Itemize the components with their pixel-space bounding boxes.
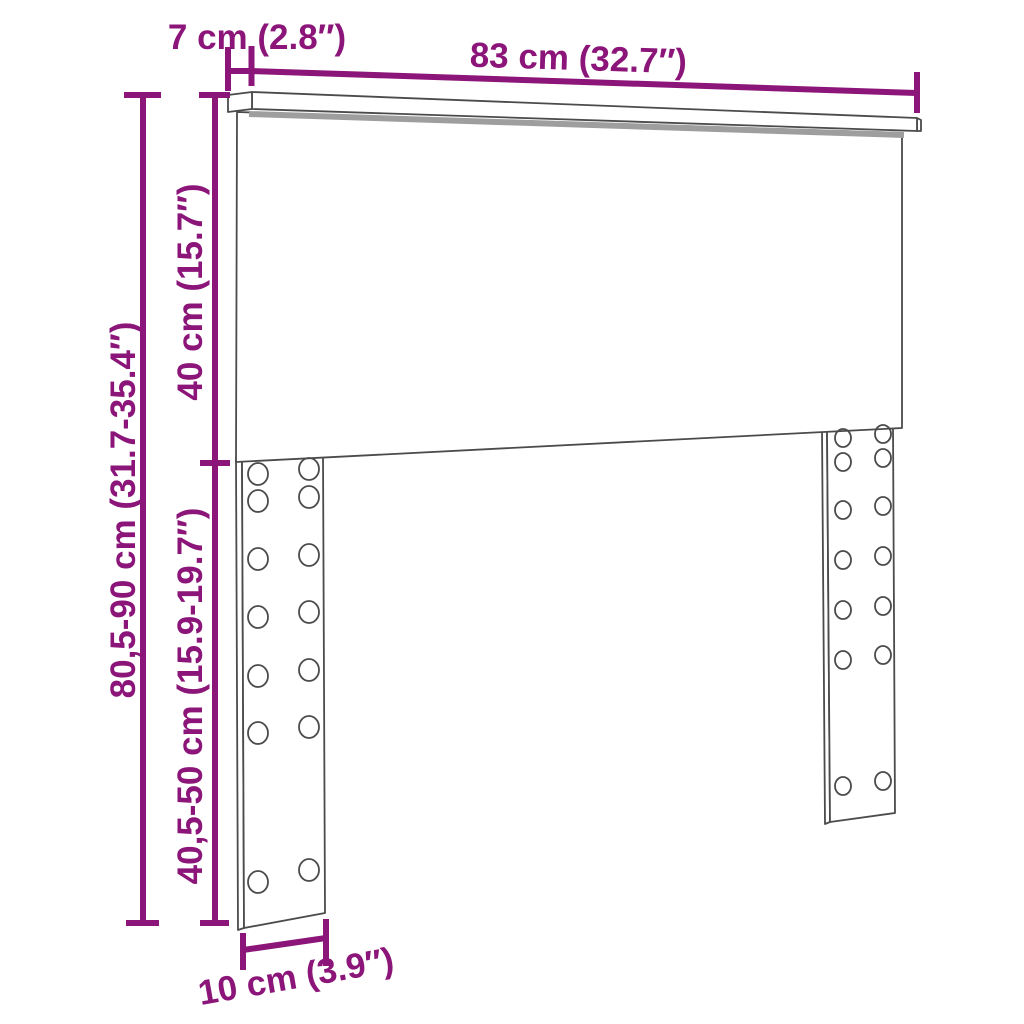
dim-total-height-label: 80,5-90 cm (31.7-35.4″) [104, 322, 143, 699]
dim-leg-width-label: 10 cm (3.9″) [195, 940, 396, 1013]
dim-leg-height: 40,5-50 cm (15.9-19.7″) [171, 463, 229, 923]
dim-leg-width-line [243, 938, 326, 950]
right-leg-front-face [827, 425, 895, 822]
dim-total-height: 80,5-90 cm (31.7-35.4″) [104, 95, 161, 923]
dim-upper-height-label: 40 cm (15.7″) [171, 183, 210, 400]
dim-leg-width: 10 cm (3.9″) [195, 919, 396, 1013]
dim-shelf-depth: 7 cm (2.8″) [168, 18, 346, 91]
right-leg [822, 425, 895, 824]
left-leg-front-face [242, 453, 325, 928]
dim-shelf-depth-label: 7 cm (2.8″) [168, 18, 346, 57]
headboard-dimension-diagram: 7 cm (2.8″) 83 cm (32.7″) 80,5-90 cm (31… [0, 0, 1024, 1024]
panel-face [236, 112, 902, 462]
shelf-end-face [228, 92, 252, 112]
dim-width-label: 83 cm (32.7″) [469, 36, 687, 82]
dim-upper-height: 40 cm (15.7″) [171, 95, 230, 463]
dim-leg-height-label: 40,5-50 cm (15.9-19.7″) [171, 508, 210, 885]
